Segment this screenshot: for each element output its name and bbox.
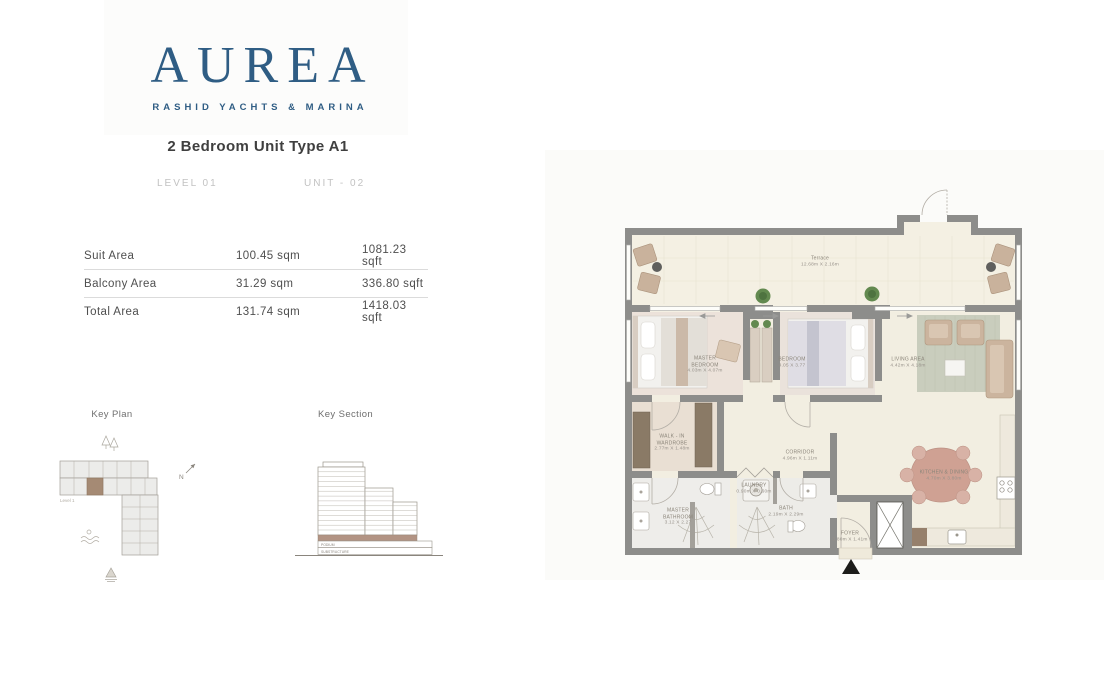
key-section-title: Key Section — [318, 409, 373, 420]
area-row-sqm: 31.29 sqm — [236, 278, 362, 290]
elevator-shaft — [877, 502, 903, 548]
label-terrace: Terrace 12.68m X 2.16m — [801, 256, 839, 269]
sink-icon — [948, 530, 966, 544]
label-master-bedroom: MASTER BEDROOM 4.03m X 4.07m — [687, 355, 723, 374]
highlighted-unit — [87, 478, 103, 495]
unit-label: UNIT - 02 — [304, 178, 365, 189]
floor-plan: Terrace 12.68m X 2.16m MASTER BEDROOM 4.… — [545, 150, 1104, 580]
label-living-area: LIVING AREA 4.42m X 4.18m — [890, 357, 925, 370]
table-row: Balcony Area 31.29 sqm 336.80 sqft — [84, 270, 428, 298]
area-row-sqm: 131.74 sqm — [236, 306, 362, 318]
entry-step — [839, 548, 872, 559]
key-plan-level-label: Level 1 — [60, 498, 75, 503]
table-row: Total Area 131.74 sqm 1418.03 sqft — [84, 298, 428, 325]
brand-tagline: RASHID YACHTS & MARINA — [104, 102, 412, 113]
section-massing — [318, 462, 417, 535]
area-row-label: Total Area — [84, 306, 236, 318]
area-row-sqft: 1418.03 sqft — [362, 300, 428, 324]
brand-block: AUREA RASHID YACHTS & MARINA — [104, 40, 412, 113]
area-table: Suit Area 100.45 sqm 1081.23 sqft Balcon… — [84, 242, 428, 325]
key-plan-title: Key Plan — [84, 409, 140, 420]
brand-logo: AUREA — [104, 40, 412, 92]
highlighted-floor — [318, 535, 417, 541]
label-laundry: LAUNDRY 0.90m X 0.60m — [736, 483, 771, 496]
key-section-drawing: PODIUM SUBSTRUCTURE — [293, 450, 445, 562]
podium-label: PODIUM — [321, 543, 335, 547]
page-title: 2 Bedroom Unit Type A1 — [104, 138, 412, 155]
table-row: Suit Area 100.45 sqm 1081.23 sqft — [84, 242, 428, 270]
beacon-icon — [105, 568, 117, 582]
area-row-sqm: 100.45 sqm — [236, 250, 362, 262]
north-arrow-icon: N — [179, 464, 195, 481]
svg-text:N: N — [179, 474, 184, 481]
label-kitchen-dining: KITCHEN & DINING 4.70m X 3.80m — [920, 470, 969, 483]
label-foyer: FOYER 3.80m X 1.41m — [832, 531, 867, 544]
entry-marker-icon — [842, 559, 860, 574]
area-row-label: Suit Area — [84, 250, 236, 262]
area-row-sqft: 336.80 sqft — [362, 278, 428, 290]
trees-icon — [102, 436, 118, 451]
label-bedroom: BEDROOM 4.05 X 3.77 — [778, 357, 805, 370]
floor-plan-drawing — [545, 150, 1104, 580]
substructure-label: SUBSTRUCTURE — [321, 550, 350, 554]
key-plan-drawing: Level 1 N — [48, 428, 200, 588]
label-corridor: CORRIDOR 4.96m X 1.11m — [783, 450, 818, 463]
label-master-bathroom: MASTER BATHROOM 3.12 X 2.27 — [660, 507, 696, 526]
label-walk-in-wardrobe: WALK - IN WARDROBE 2.77m X 1.48m — [654, 433, 690, 452]
area-row-label: Balcony Area — [84, 278, 236, 290]
level-label: LEVEL 01 — [157, 178, 218, 189]
brochure-page: AUREA RASHID YACHTS & MARINA 2 Bedroom U… — [0, 0, 1104, 699]
waves-icon — [81, 530, 99, 544]
building-footprint — [60, 461, 158, 555]
area-row-sqft: 1081.23 sqft — [362, 244, 428, 268]
label-bath: BATH 2.19m X 2.29m — [768, 506, 803, 519]
stove-icon — [997, 477, 1015, 499]
